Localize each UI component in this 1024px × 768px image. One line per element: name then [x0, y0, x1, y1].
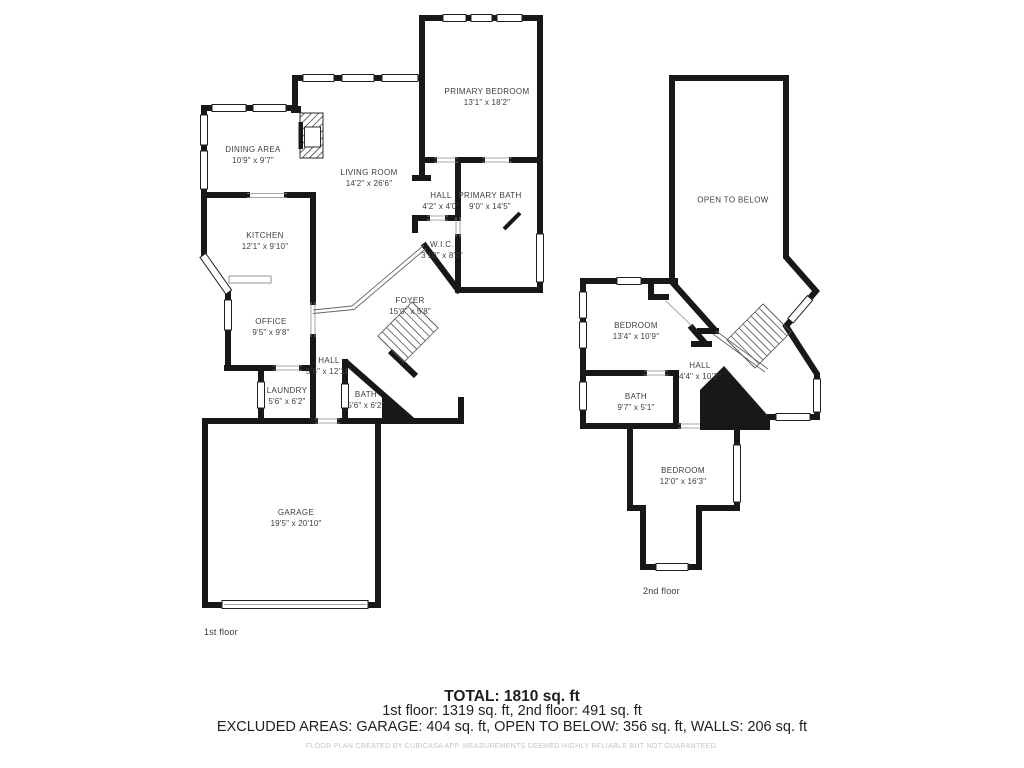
floor2-caption: 2nd floor [643, 586, 680, 596]
room-label-primary-bath: PRIMARY BATH9'0" x 14'5" [458, 190, 521, 212]
room-label-hall-2f: HALL4'4" x 10'2" [679, 360, 721, 382]
room-label-bedroom-2f: BEDROOM13'4" x 10'9" [613, 320, 659, 342]
room-label-living-room: LIVING ROOM14'2" x 26'6" [340, 167, 397, 189]
room-label-kitchen: KITCHEN12'1" x 9'10" [242, 230, 288, 252]
summary-excluded-areas: EXCLUDED AREAS: GARAGE: 404 sq. ft, OPEN… [0, 719, 1024, 735]
fireplace [291, 106, 323, 158]
room-label-office: OFFICE9'5" x 9'8" [252, 316, 289, 338]
room-label-laundry: LAUNDRY5'6" x 6'2" [267, 385, 308, 407]
room-label-bath-2f: BATH9'7" x 5'1" [617, 391, 654, 413]
room-label-bath-1f: BATH5'6" x 6'2" [347, 389, 384, 411]
room-label-wic: W.I.C.3'10" x 8'0" [421, 239, 463, 261]
room-label-primary-bedroom: PRIMARY BEDROOM13'1" x 18'2" [445, 86, 530, 108]
room-label-hall-upper: HALL4'2" x 4'0" [422, 190, 459, 212]
stairs-floor2 [727, 304, 791, 368]
room-label-open-to-below: OPEN TO BELOW [697, 195, 768, 206]
shower-corner-wall [504, 213, 520, 229]
room-label-foyer: FOYER15'0" x 5'8" [389, 295, 431, 317]
bay-window [200, 253, 232, 294]
room-label-garage: GARAGE19'5" x 20'10" [270, 507, 321, 529]
kitchen-counter [229, 276, 271, 283]
room-label-hall-1f: HALL5'6" x 12'11" [306, 355, 352, 377]
summary-disclaimer: FLOOR PLAN CREATED BY CUBICASA APP. MEAS… [0, 743, 1024, 750]
floor-plan-drawing [0, 0, 1024, 768]
room-label-dining-area: DINING AREA10'9" x 9'7" [225, 144, 280, 166]
angled-window [788, 296, 813, 323]
summary-floor-areas: 1st floor: 1319 sq. ft, 2nd floor: 491 s… [0, 703, 1024, 719]
floor-plan-page: DINING AREA10'9" x 9'7" LIVING ROOM14'2"… [0, 0, 1024, 768]
floor1-caption: 1st floor [204, 627, 238, 637]
room-label-bedroom2-2f: BEDROOM12'0" x 16'3" [660, 465, 706, 487]
